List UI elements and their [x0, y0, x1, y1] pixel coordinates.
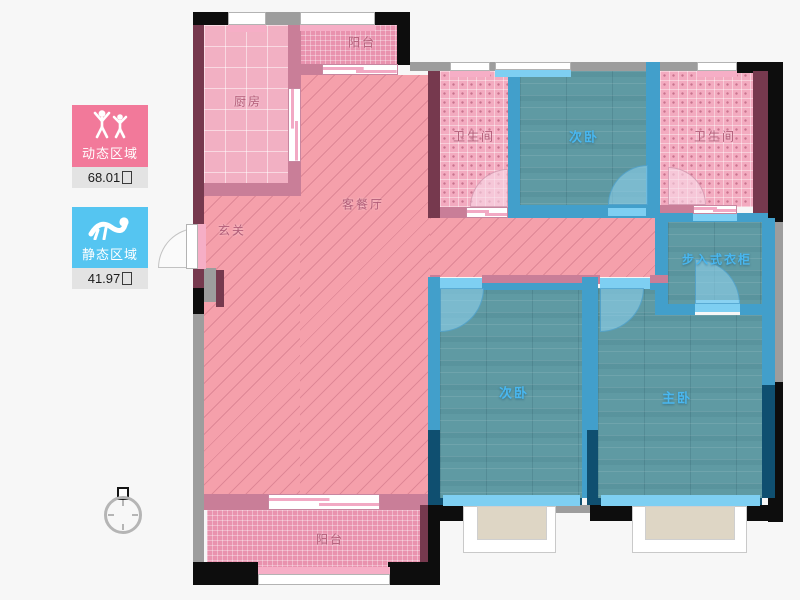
wall	[556, 505, 590, 513]
legend-static-area: 41.97	[72, 268, 148, 289]
floorplan-viewer: 动态区域 68.01 静态区域 41.97	[0, 0, 800, 600]
wall	[762, 218, 775, 315]
entry-door-leaf	[186, 224, 198, 269]
wall	[571, 62, 697, 71]
sliding-door	[693, 205, 737, 214]
wall	[508, 71, 520, 205]
sliding-door	[268, 494, 380, 510]
sliding-door	[288, 88, 301, 162]
wall	[646, 62, 660, 218]
legend-static-card: 静态区域	[72, 207, 148, 268]
wall	[300, 64, 322, 75]
compass-tick-north	[122, 500, 124, 506]
sqm-unit-glyph	[122, 272, 132, 285]
wall	[650, 283, 668, 290]
compass-tick-east	[132, 514, 138, 516]
room-label-closet: 步入式衣柜	[682, 251, 752, 268]
wall	[410, 62, 450, 71]
wall	[753, 71, 768, 213]
window-sill	[228, 25, 266, 32]
wall	[193, 288, 204, 314]
room-label-master: 主卧	[662, 388, 692, 407]
room-master-bedroom[interactable]	[598, 315, 762, 498]
wall	[216, 270, 224, 307]
wall	[204, 494, 268, 510]
window	[300, 12, 375, 25]
bay-window-sill	[645, 506, 735, 540]
wall	[655, 222, 668, 312]
room-label-balcony-top: 阳台	[348, 34, 376, 51]
window-sill	[450, 71, 490, 77]
wall	[768, 62, 783, 222]
people-active-icon	[89, 109, 131, 139]
room-label-bedroom-bottom: 次卧	[499, 383, 529, 402]
wall	[590, 505, 632, 521]
wall	[762, 385, 775, 498]
compass-icon	[104, 496, 142, 534]
room-label-entry: 玄关	[218, 222, 246, 239]
wall	[193, 562, 258, 585]
room-label-bathroom-left: 卫生间	[453, 128, 495, 145]
door-threshold	[693, 213, 737, 221]
sliding-door	[466, 207, 508, 218]
window-sill	[697, 71, 737, 77]
door-threshold	[197, 224, 206, 269]
wall	[655, 304, 695, 315]
door-threshold	[608, 208, 646, 216]
sqm-unit-glyph	[122, 171, 132, 184]
static-area-value: 41.97	[88, 271, 121, 286]
wall	[204, 183, 288, 196]
wall	[775, 222, 783, 382]
wall	[193, 269, 204, 288]
person-resting-icon	[87, 214, 133, 240]
window-sill	[258, 567, 390, 574]
legend-dynamic-label: 动态区域	[82, 143, 138, 162]
wall	[740, 304, 768, 315]
wall	[428, 430, 440, 512]
window-sill	[601, 495, 760, 506]
window	[495, 62, 571, 70]
wall	[263, 12, 302, 25]
wall	[428, 277, 440, 430]
bay-window-sill	[477, 506, 547, 540]
window	[450, 62, 490, 71]
window-sill	[495, 70, 571, 77]
room-label-living: 客餐厅	[342, 196, 384, 213]
wall	[428, 64, 440, 218]
legend-dynamic-card: 动态区域	[72, 105, 148, 167]
sliding-door	[322, 64, 398, 75]
wall	[762, 315, 775, 385]
room-balcony-bottom[interactable]	[207, 510, 420, 567]
window-sill	[443, 495, 580, 506]
wall	[204, 268, 216, 302]
window	[258, 574, 390, 585]
compass-tick-south	[122, 524, 124, 530]
window	[697, 62, 737, 71]
legend-static-label: 静态区域	[82, 244, 138, 263]
room-living-dining[interactable]	[300, 75, 430, 497]
room-label-bedroom-top: 次卧	[569, 127, 599, 146]
wall	[193, 25, 204, 224]
compass-tick-west	[108, 514, 114, 516]
dynamic-area-value: 68.01	[88, 170, 121, 185]
wall	[747, 505, 783, 521]
room-living-entry[interactable]	[204, 196, 300, 497]
wall	[397, 12, 410, 65]
window-sill	[300, 25, 375, 31]
window	[228, 12, 266, 25]
wall	[587, 430, 598, 510]
wall	[482, 283, 582, 290]
wall	[440, 207, 466, 218]
room-living-corridor[interactable]	[430, 218, 662, 277]
wall	[388, 562, 440, 585]
legend-dynamic-area: 68.01	[72, 167, 148, 188]
room-label-bathroom-right: 卫生间	[694, 128, 736, 145]
room-label-kitchen: 厨房	[234, 93, 262, 110]
wall	[193, 314, 204, 562]
room-label-balcony-bottom: 阳台	[316, 531, 344, 548]
